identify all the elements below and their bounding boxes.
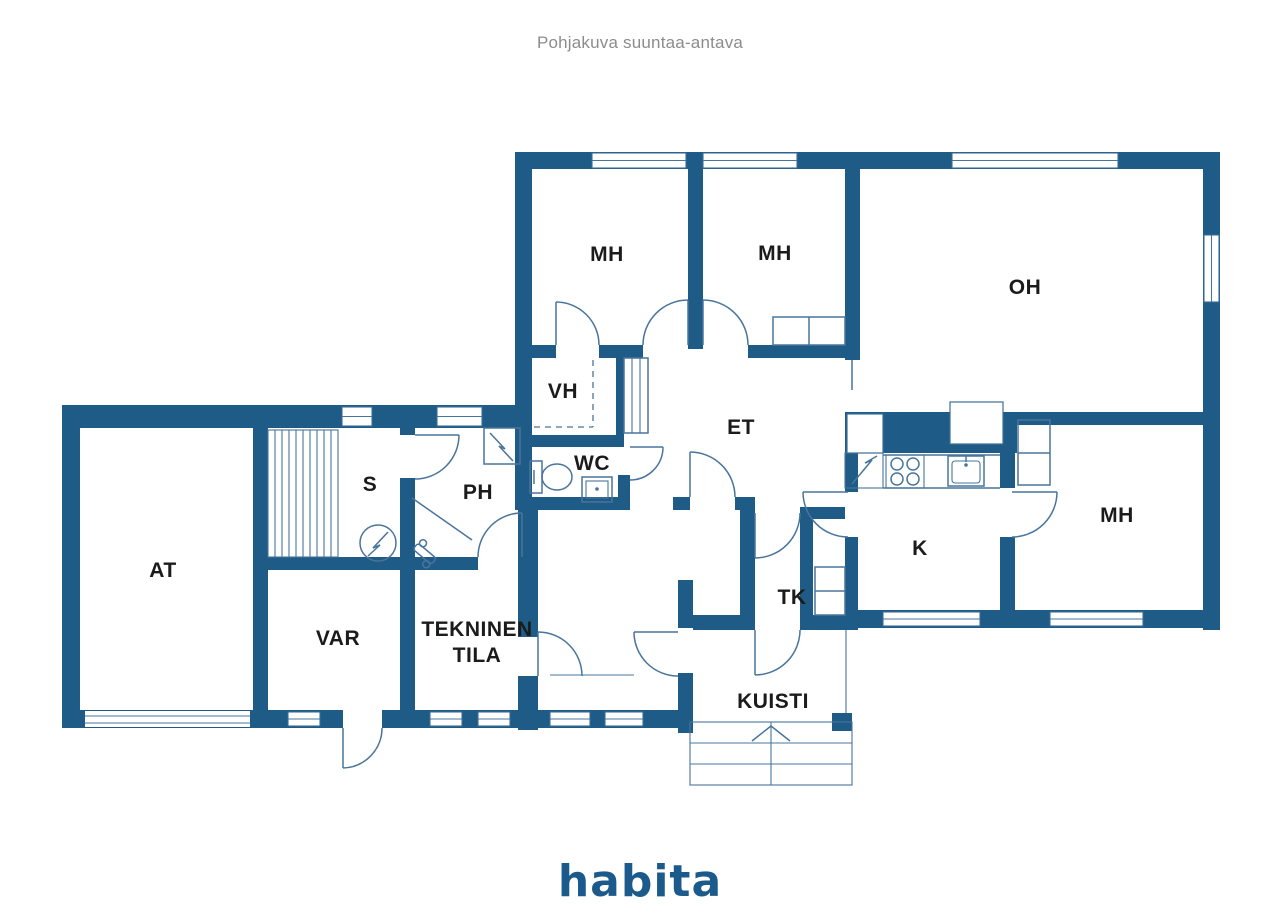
doors [343,300,1057,768]
door-arc [634,632,678,676]
window [592,153,686,168]
stove-icon [886,455,924,488]
room-label-vh: VH [548,380,578,403]
closet [1018,420,1050,485]
room-label-tekninen-line1: TEKNINEN [421,618,532,641]
window [437,407,482,426]
toilet-icon [530,461,572,493]
room-label-et: ET [727,416,755,439]
window [883,612,980,626]
door-arc [478,513,522,557]
room-label-mh-3: MH [1100,504,1134,527]
door-arc [343,728,382,768]
door-opening [343,709,382,729]
closet [773,317,845,345]
garage-door [85,711,250,727]
room-label-kuisti: KUISTI [737,690,809,713]
door-arc [703,300,748,345]
door-arc [643,300,688,345]
floor-plan-page: Pohjakuva suuntaa-antava [0,0,1280,905]
chimney-notch [950,402,1003,444]
door-arc [690,452,735,497]
window [288,712,320,726]
room-label-oh: OH [1009,276,1042,299]
page-title: Pohjakuva suuntaa-antava [537,33,743,52]
window [952,153,1118,168]
window [550,712,590,726]
window [1050,612,1143,626]
stairs [690,722,852,785]
room-label-k: K [912,537,928,560]
door-arc [755,630,800,675]
wardrobe-shelves [624,358,648,433]
shelf-unit [815,567,845,615]
window [605,712,643,726]
room-label-wc: WC [574,452,610,475]
kitchen-sink-icon [948,456,984,486]
door-arc [755,513,800,558]
floor-plan-drawing: Pohjakuva suuntaa-antava [0,0,1280,905]
sauna-stove-icon [360,525,396,561]
window [430,712,462,726]
habita-logo: habita [558,856,722,905]
room-label-ph: PH [463,481,493,504]
walls [62,152,1220,733]
window [1204,235,1219,302]
room-label-mh-1: MH [590,243,624,266]
window [703,153,797,168]
room-label-mh-2: MH [758,242,792,265]
fireplace-hearth [847,414,883,453]
door-arc [556,302,599,345]
room-label-s: S [363,473,378,496]
door-arc [538,632,582,676]
shower-icon [484,428,520,464]
door-arc [1012,492,1057,537]
window [342,407,372,426]
sauna-benches [268,430,338,557]
window [478,712,510,726]
door-arc [630,447,663,480]
room-label-at: AT [149,559,176,582]
door-arc [415,435,459,479]
corner-bench-line [412,498,472,540]
room-label-tk: TK [778,586,807,609]
sink-icon [582,477,612,502]
room-label-var: VAR [316,627,360,650]
room-label-tekninen-line2: TILA [453,644,502,667]
